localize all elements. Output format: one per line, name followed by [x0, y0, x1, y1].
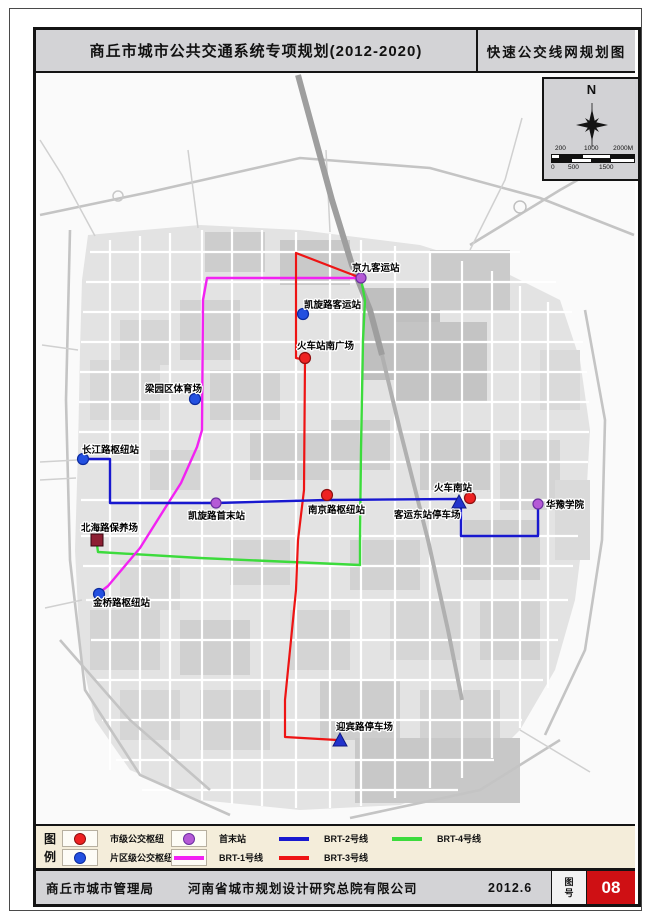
- sheet-number-label: 图 号: [551, 871, 587, 904]
- legend: 图 例 市级公交枢纽 首末站 BRT-2号线 BRT-4号线 片区级公交枢纽 B…: [36, 824, 635, 870]
- scale-tick: 0: [551, 164, 555, 171]
- legend-heading: 图: [40, 830, 60, 847]
- red-line-icon: [276, 849, 312, 866]
- station-label: 火车南站: [434, 482, 473, 494]
- legend-item-brt1: BRT-1号线: [171, 849, 263, 866]
- green-line-icon: [389, 830, 425, 847]
- legend-item-brt4: BRT-4号线: [389, 830, 481, 847]
- plan-sheet: 商丘市城市公共交通系统专项规划(2012-2020) 快速公交线网规划图: [0, 0, 650, 919]
- sheet-title: 商丘市城市公共交通系统专项规划(2012-2020): [36, 30, 478, 71]
- station-label: 凯旋路客运站: [304, 299, 362, 311]
- scale-tick: 2000M: [613, 145, 633, 152]
- blue-circle-icon: [62, 849, 98, 866]
- scale-tick: 1500: [599, 164, 613, 171]
- station-label: 梁园区体育场: [144, 383, 203, 395]
- scale-tick: 200: [555, 145, 566, 152]
- station-label: 华豫学院: [546, 499, 585, 511]
- station-label: 迎宾路停车场: [336, 721, 394, 733]
- title-block: 商丘市城市管理局 河南省城市规划设计研究总院有限公司 2012.6 图 号 08: [36, 868, 635, 904]
- legend-item-district-hub: 片区级公交枢纽: [62, 849, 173, 866]
- station-label: 客运东站停车场: [393, 509, 461, 521]
- station-label: 金桥路枢纽站: [92, 597, 151, 609]
- legend-item-brt3: BRT-3号线: [276, 849, 368, 866]
- drawing-title: 快速公交线网规划图: [478, 30, 635, 71]
- blue-line-icon: [276, 830, 312, 847]
- city-hub-marker: [465, 493, 476, 504]
- agency-name: 商丘市城市管理局: [46, 871, 154, 904]
- north-label: N: [544, 82, 639, 97]
- compass-rose-icon: [570, 101, 614, 149]
- terminal-marker: [533, 499, 543, 509]
- legend-item-city-hub: 市级公交枢纽: [62, 830, 164, 847]
- title-bar: 商丘市城市公共交通系统专项规划(2012-2020) 快速公交线网规划图: [36, 30, 635, 73]
- city-hub-marker: [300, 353, 311, 364]
- magenta-line-icon: [171, 849, 207, 866]
- station-label: 京九客运站: [352, 262, 400, 274]
- station-label: 南京路枢纽站: [308, 504, 366, 516]
- district-hub-marker: [190, 394, 201, 405]
- terminal-marker: [211, 498, 221, 508]
- scale-tick: 500: [568, 164, 579, 171]
- sheet-number: 08: [587, 871, 635, 904]
- designer-name: 河南省城市规划设计研究总院有限公司: [188, 871, 418, 904]
- station-label: 北海路保养场: [81, 522, 139, 534]
- terminal-marker: [356, 273, 366, 283]
- station-label: 凯旋路首末站: [188, 510, 246, 522]
- red-circle-icon: [62, 830, 98, 847]
- station-label: 火车站南广场: [297, 340, 355, 352]
- scale-bar: 200 1000 2000M 0 500 1500: [551, 145, 633, 171]
- depot-square-marker: [91, 534, 103, 546]
- scale-tick: 1000: [584, 145, 598, 152]
- station-label: 长江路枢纽站: [82, 444, 140, 456]
- map-canvas: 京九客运站 凯旋路客运站 火车站南广场 梁园区体育场 长江路枢纽站 凯旋路首末站…: [36, 73, 635, 824]
- legend-item-brt2: BRT-2号线: [276, 830, 368, 847]
- date: 2012.6: [488, 871, 532, 904]
- city-hub-marker: [322, 490, 333, 501]
- purple-circle-icon: [171, 830, 207, 847]
- legend-heading: 例: [40, 848, 60, 865]
- legend-item-terminal: 首末站: [171, 830, 246, 847]
- compass-box: N 200 1000 2000M 0 500 1500: [542, 77, 641, 181]
